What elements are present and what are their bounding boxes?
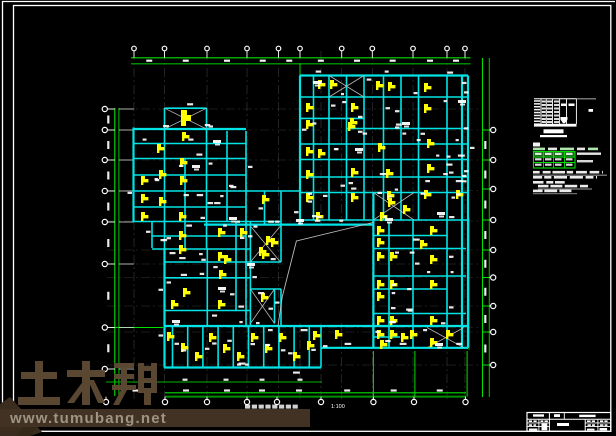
svg-text:www.tumubang.net: www.tumubang.net	[9, 410, 167, 427]
svg-text:1:100: 1:100	[331, 404, 345, 410]
